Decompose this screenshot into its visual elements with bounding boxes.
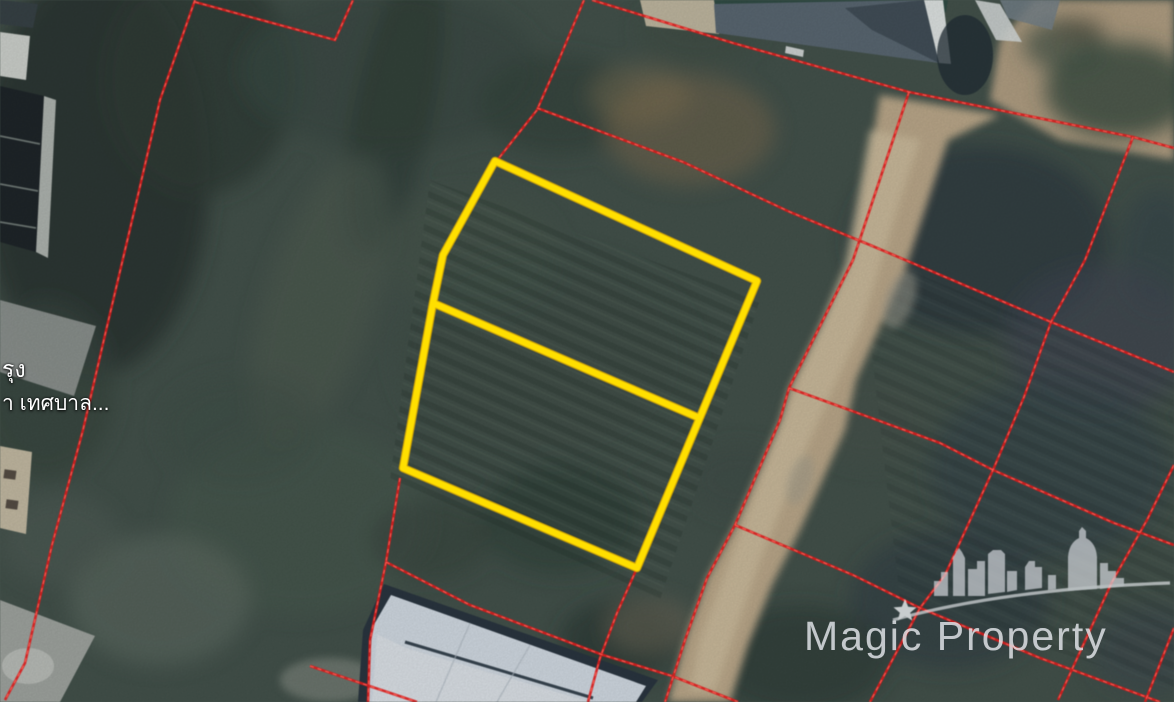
map-place-label-line2: า เทศบาล... (2, 387, 109, 420)
satellite-map-image: รุง า เทศบาล... Magic Property (0, 0, 1174, 702)
map-place-label-line1: รุง (2, 352, 26, 388)
map-canvas (0, 0, 1174, 702)
watermark-text: Magic Property (804, 613, 1108, 660)
